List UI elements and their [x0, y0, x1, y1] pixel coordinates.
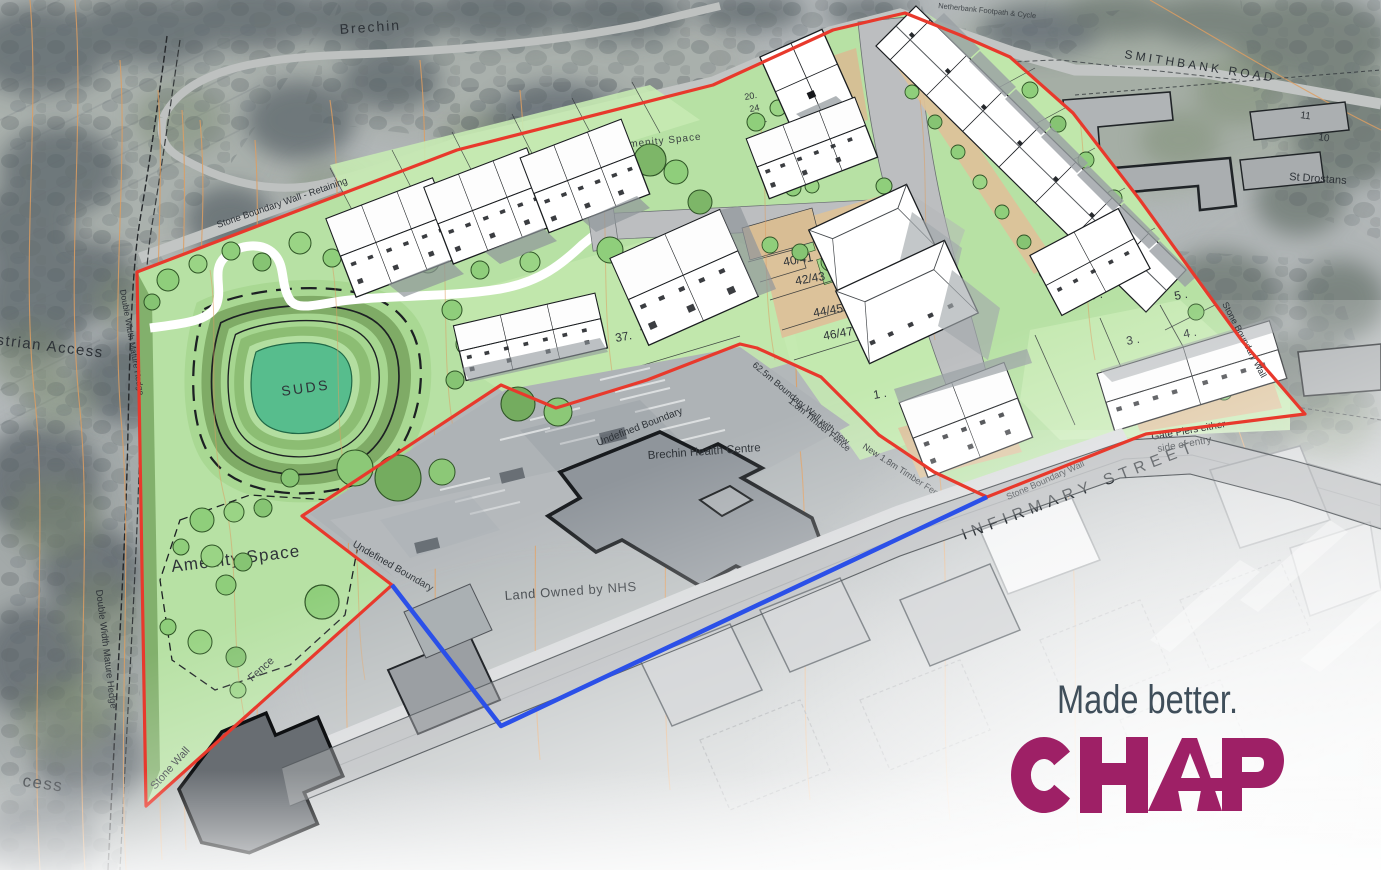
svg-text:10: 10 — [1318, 132, 1331, 145]
svg-text:11: 11 — [1300, 110, 1312, 122]
svg-text:20.: 20. — [744, 90, 758, 102]
svg-text:Made better.: Made better. — [1057, 678, 1238, 722]
svg-text:24: 24 — [749, 102, 761, 114]
